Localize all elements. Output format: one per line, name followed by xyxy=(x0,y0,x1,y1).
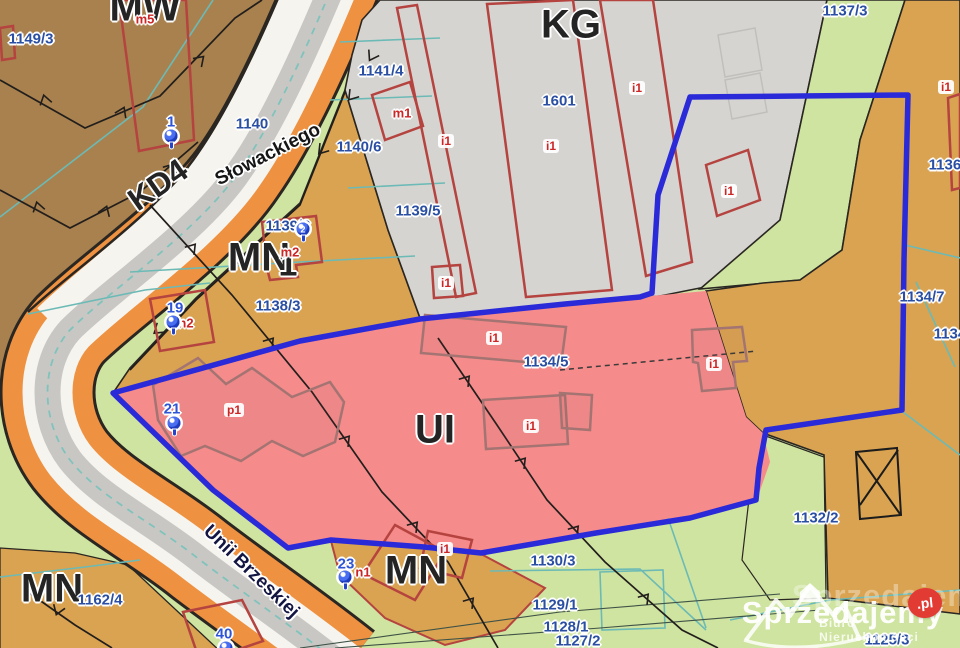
marker-pin-40[interactable] xyxy=(220,642,233,648)
map-graphics xyxy=(0,0,960,648)
marker-pin-23[interactable] xyxy=(339,571,352,584)
marker-pin-21[interactable] xyxy=(168,417,181,430)
map-canvas[interactable]: MW KG KD4 MN 1 UI MN MN Słowackiego Unii… xyxy=(0,0,960,648)
marker-number-2: 2 xyxy=(297,223,310,236)
marker-pin-1[interactable] xyxy=(165,130,178,143)
marker-pin-19[interactable] xyxy=(167,316,180,329)
marker-pin-2[interactable]: 2 xyxy=(297,223,310,236)
